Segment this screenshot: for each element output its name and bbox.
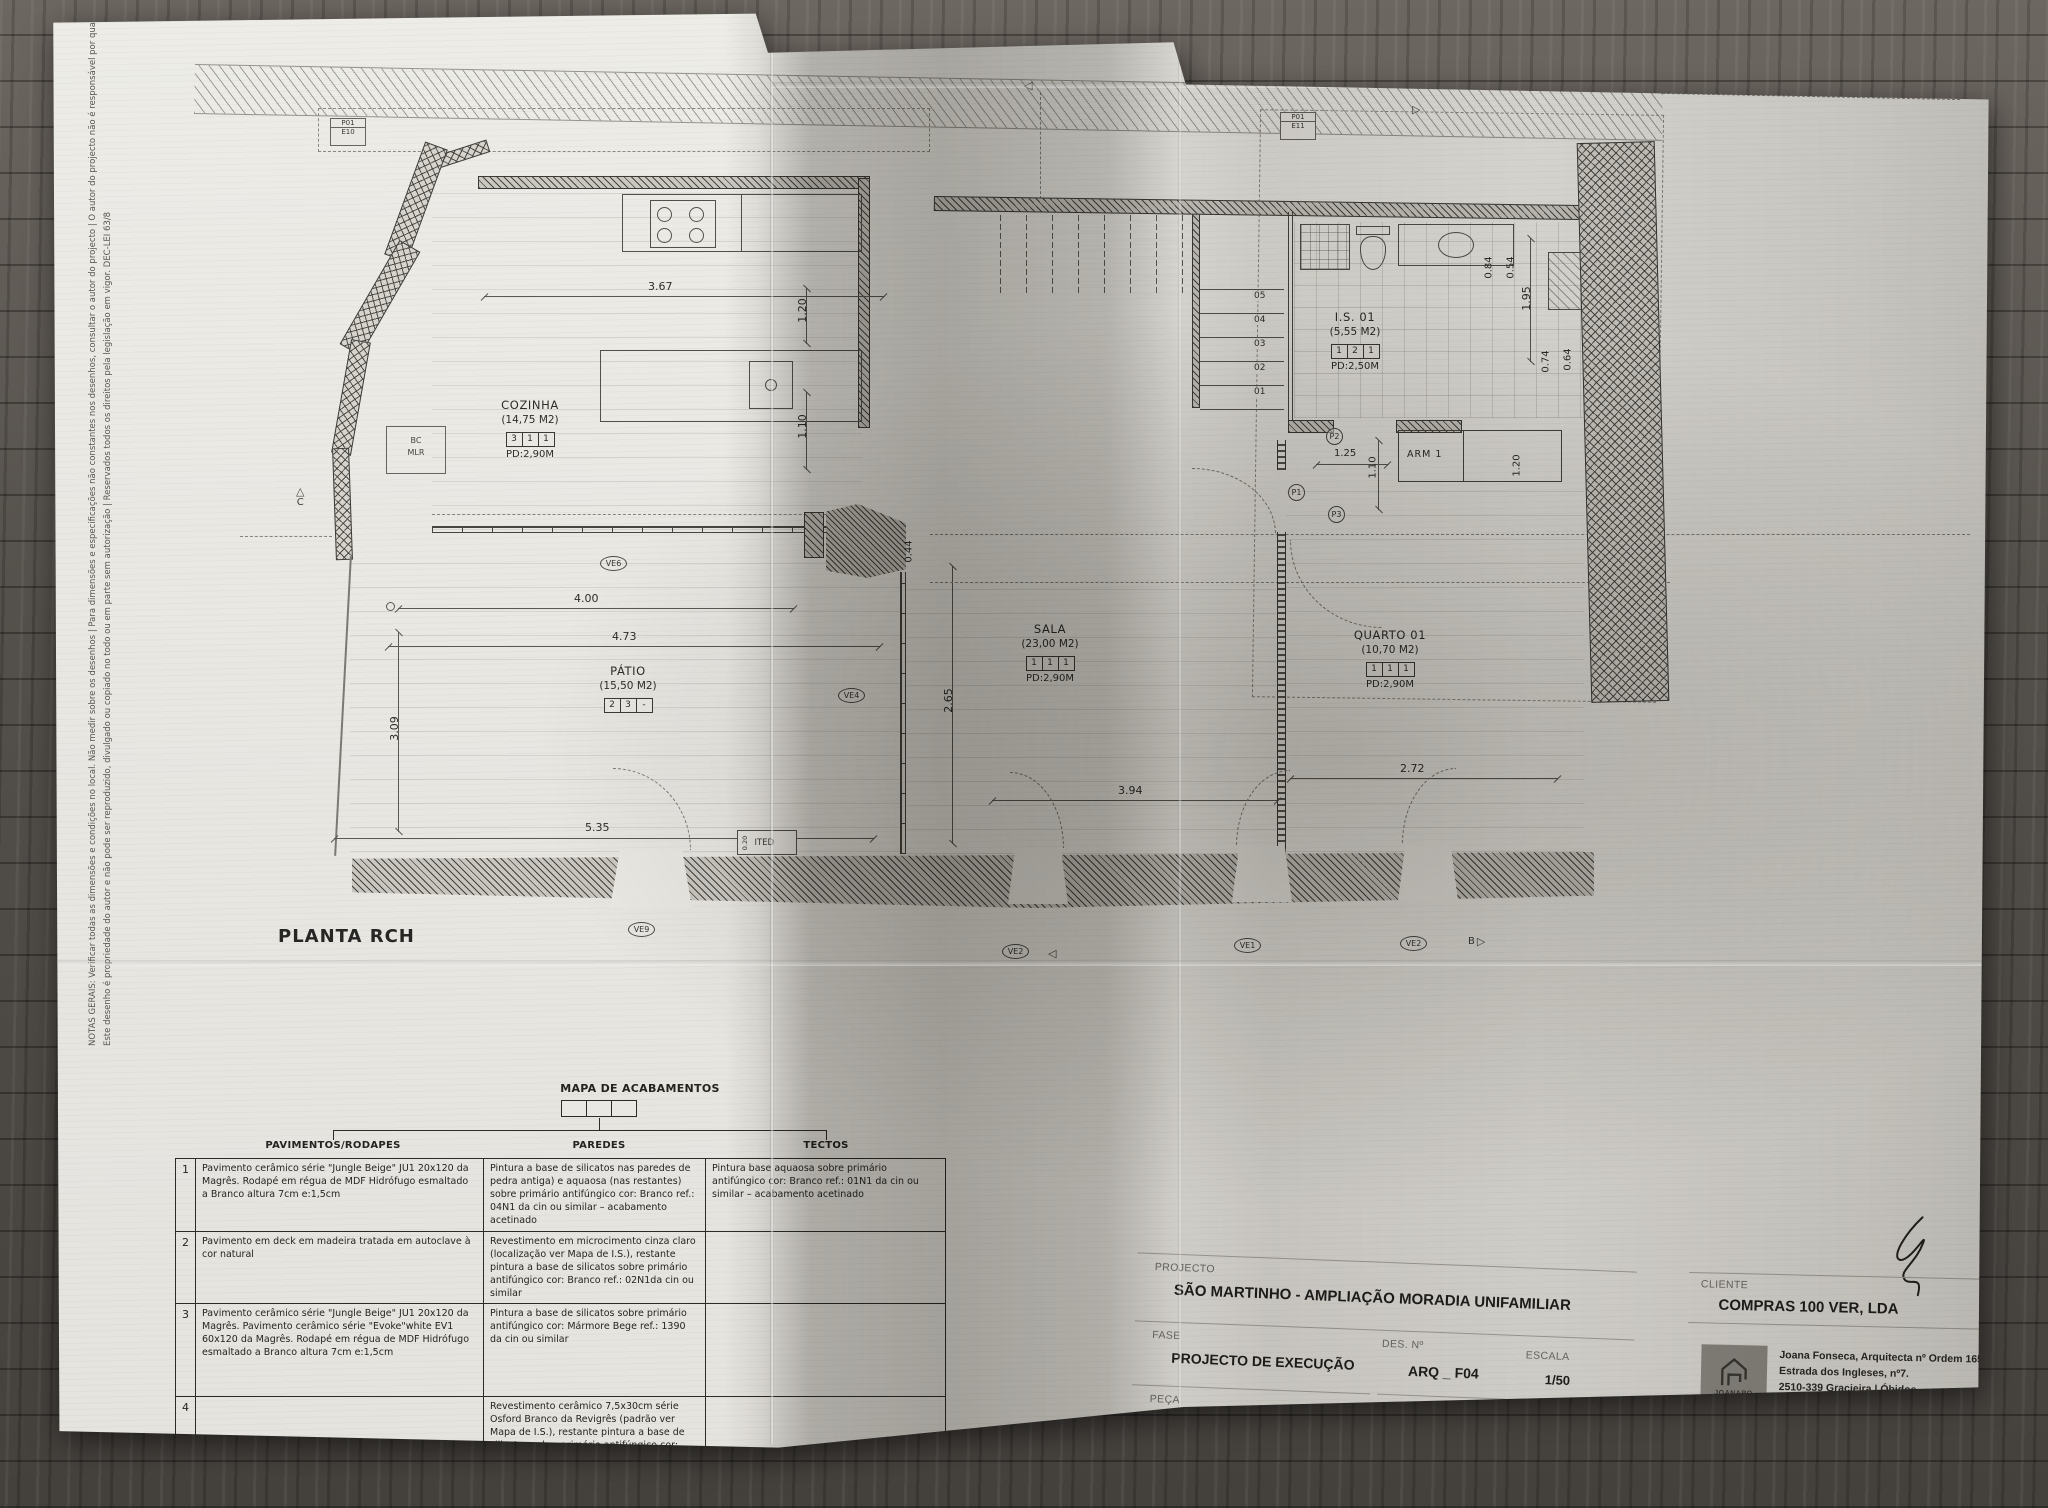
finish-codes: 111 bbox=[1366, 662, 1415, 677]
data-label: DATA bbox=[1379, 1402, 1407, 1415]
dim-label: 4.00 bbox=[574, 592, 599, 605]
code-cell: 1 bbox=[1027, 657, 1043, 670]
finish-map-title: MAPA DE ACABAMENTOS bbox=[520, 1082, 760, 1095]
ref-box-p01-e10: P01 E10 bbox=[330, 118, 366, 146]
cell-tectos: Pintura base aquaosa sobre primário anti… bbox=[706, 1159, 946, 1232]
room-label-sala: SALA (23,00 M2) 111 PD:2,90M bbox=[995, 622, 1105, 684]
dim-label: 1.20 bbox=[1512, 454, 1523, 476]
divider bbox=[1519, 1473, 1611, 1478]
triangle-left-icon: ◁ bbox=[1024, 79, 1032, 92]
escala-value: 1/50 bbox=[1545, 1372, 1571, 1388]
legend-cell bbox=[562, 1101, 587, 1116]
connector-line bbox=[599, 1118, 600, 1130]
boundary-dashed-line bbox=[1662, 93, 1960, 100]
cell-paredes: Pintura a base de silicatos sobre primár… bbox=[484, 1304, 706, 1397]
stair-upper-flight bbox=[1000, 208, 1192, 296]
cliente-block: CLIENTE COMPRAS 100 VER, LDA JOANARQ Joa… bbox=[1685, 1240, 2010, 1477]
escala-label: ESCALA bbox=[1525, 1349, 1569, 1363]
mlr-label: MLR bbox=[387, 447, 445, 459]
room-area: (5,55 M2) bbox=[1300, 326, 1410, 338]
room-area: (14,75 M2) bbox=[470, 414, 590, 426]
architect-line: E-mail: joanaritafonseca@gmail.com bbox=[1778, 1411, 1994, 1432]
dim-line bbox=[388, 646, 880, 647]
door-tag-ve9: VE9 bbox=[628, 922, 655, 937]
code-cell: 1 bbox=[1059, 657, 1074, 670]
cell-pavimentos: Pavimento cerâmico série "Jungle Beige" … bbox=[196, 1304, 484, 1397]
finish-table: 1 Pavimento cerâmico série "Jungle Beige… bbox=[175, 1158, 946, 1478]
room-label-quarto: QUARTO 01 (10,70 M2) 111 PD:2,90M bbox=[1330, 628, 1450, 690]
code-cell: 1 bbox=[1043, 657, 1059, 670]
burner-icon bbox=[689, 207, 704, 222]
general-notes-vertical: NOTAS GERAIS: Verificar todas as dimensõ… bbox=[86, 216, 117, 1046]
dim-label: 1.25 bbox=[1334, 448, 1356, 459]
door-opening bbox=[610, 850, 692, 908]
door-tag-p2: P2 bbox=[1326, 428, 1343, 445]
divider bbox=[1130, 1450, 1368, 1460]
connector-line bbox=[333, 1130, 334, 1140]
cell-pavimentos: Pavimento cerâmico série "Jungle Beige" … bbox=[196, 1159, 484, 1232]
cell-tectos bbox=[706, 1304, 946, 1397]
dim-line bbox=[484, 296, 884, 297]
dim-label: 3.67 bbox=[648, 280, 673, 293]
code-cell: 1 bbox=[1367, 663, 1383, 676]
dim-label: 1.10 bbox=[1368, 456, 1379, 478]
finish-codes: 121 bbox=[1331, 344, 1380, 359]
island-sink bbox=[749, 361, 793, 409]
legend-cell bbox=[587, 1101, 612, 1116]
room-name: SALA bbox=[995, 622, 1105, 636]
title-block: PROJECTO SÃO MARTINHO - AMPLIAÇÃO MORADI… bbox=[1119, 1236, 1648, 1496]
stone-wall-segment bbox=[332, 448, 353, 561]
room-ceiling-height: PD:2,50M bbox=[1300, 361, 1410, 372]
cell-paredes: Pintura a base de silicatos nas paredes … bbox=[484, 1159, 706, 1232]
des-value: ARQ _ F04 bbox=[1408, 1363, 1479, 1382]
stair-step-number: 03 bbox=[1252, 339, 1267, 349]
cliente-value: COMPRAS 100 VER, LDA bbox=[1718, 1297, 1898, 1318]
finish-codes: 111 bbox=[1026, 656, 1075, 671]
row-number: 2 bbox=[176, 1231, 196, 1304]
paper-wrap: P01 E10 P01 E11 ◁ ▷ bbox=[0, 0, 2048, 1508]
connector-line bbox=[826, 1130, 827, 1140]
notes-line1: NOTAS GERAIS: Verificar todas as dimensõ… bbox=[86, 216, 101, 1046]
code-cell: 1 bbox=[1383, 663, 1399, 676]
stove bbox=[650, 200, 716, 248]
table-row: 3 Pavimento cerâmico série "Jungle Beige… bbox=[176, 1304, 946, 1397]
row-number: 1 bbox=[176, 1159, 196, 1232]
kitchen-island bbox=[600, 350, 862, 422]
stone-wall-segment bbox=[331, 339, 371, 456]
ref-box-line2: E10 bbox=[331, 128, 365, 136]
column-header-pavimentos: PAVIMENTOS/RODAPES bbox=[228, 1140, 438, 1151]
bc-label: BC bbox=[387, 435, 445, 447]
level-point-icon bbox=[386, 602, 395, 611]
counter-divider bbox=[741, 195, 742, 251]
dim-label: 3.09 bbox=[388, 716, 401, 741]
code-cell: 1 bbox=[1364, 345, 1379, 358]
fase-value: PROJECTO DE EXECUÇÃO bbox=[1171, 1350, 1355, 1373]
burner-icon bbox=[689, 228, 704, 243]
dim-label: 1.10 bbox=[796, 414, 809, 439]
dim-label: 0.44 bbox=[904, 540, 915, 562]
bc-mlr-box: BC MLR bbox=[386, 426, 446, 474]
room-area: (15,50 M2) bbox=[568, 680, 688, 692]
burner-icon bbox=[657, 228, 672, 243]
closet-divider bbox=[1463, 431, 1464, 481]
ref-box-line1: P01 bbox=[331, 119, 365, 128]
room-label-patio: PÁTIO (15,50 M2) 23- bbox=[568, 664, 688, 713]
dim-label: 0.74 bbox=[1541, 350, 1552, 372]
revisao-label: REVISÃO bbox=[1523, 1415, 1573, 1429]
divider bbox=[1522, 1409, 1614, 1414]
signature bbox=[1881, 1212, 1939, 1297]
peca-value: PROPOSTA - PLANTA RCH bbox=[1169, 1414, 1348, 1437]
dim-line bbox=[1290, 778, 1558, 779]
stair-side-wall bbox=[1192, 208, 1200, 408]
cell-tectos bbox=[706, 1231, 946, 1304]
dim-label: 0.54 bbox=[1506, 256, 1517, 278]
room-label-cozinha: COZINHA (14,75 M2) 311 PD:2,90M bbox=[470, 398, 590, 460]
table-row: 4 Revestimento cerâmico 7,5x30cm série O… bbox=[176, 1397, 946, 1478]
code-cell: 2 bbox=[605, 699, 621, 712]
door-tag-ve2b: VE2 bbox=[1400, 936, 1427, 951]
logo-tagline-bar bbox=[1716, 1397, 1750, 1400]
des-label: DES. Nº bbox=[1382, 1338, 1424, 1352]
section-line-vertical bbox=[1040, 92, 1041, 204]
column-header-tectos: TECTOS bbox=[756, 1140, 896, 1151]
dim-line bbox=[398, 608, 794, 609]
cell-pavimentos: Pavimento em deck em madeira tratada em … bbox=[196, 1231, 484, 1304]
row-number: 3 bbox=[176, 1304, 196, 1397]
ref-box-line1: P01 bbox=[1281, 113, 1315, 122]
glazing-dashed-line bbox=[432, 514, 852, 515]
code-cell: 3 bbox=[507, 433, 523, 446]
section-marker-top-left: ◁ bbox=[1024, 74, 1032, 93]
drawing-sheet: P01 E10 P01 E11 ◁ ▷ bbox=[0, 0, 2048, 1508]
stone-wall-east bbox=[1577, 141, 1670, 703]
is01-west-wall bbox=[1288, 212, 1293, 424]
ref-box-line2: E11 bbox=[1281, 122, 1315, 130]
cozinha-north-wall bbox=[478, 176, 870, 189]
room-name: I.S. 01 bbox=[1300, 310, 1410, 324]
code-cell: 2 bbox=[1348, 345, 1364, 358]
glazed-wall-south bbox=[432, 526, 852, 533]
code-cell: 1 bbox=[523, 433, 539, 446]
architect-info: Joana Fonseca, Arquitecta nº Ordem 16595… bbox=[1778, 1348, 1995, 1432]
wall-pier-small bbox=[804, 512, 824, 558]
room-label-is01: I.S. 01 (5,55 M2) 121 PD:2,50M bbox=[1300, 310, 1410, 372]
door-tag-ve1: VE1 bbox=[1234, 938, 1261, 953]
architect-logo: JOANARQ bbox=[1700, 1344, 1767, 1409]
ited-label: ITED bbox=[754, 838, 774, 848]
door-tag-ve2: VE2 bbox=[1002, 944, 1029, 959]
code-cell: 3 bbox=[621, 699, 637, 712]
projecto-value: SÃO MARTINHO - AMPLIAÇÃO MORADIA UNIFAMI… bbox=[1174, 1282, 1572, 1314]
dim-label: 5.35 bbox=[585, 821, 610, 834]
divider bbox=[1374, 1466, 1502, 1472]
stair-lower-flight bbox=[1200, 288, 1284, 410]
plan-caption: PLANTA RCH bbox=[278, 926, 415, 947]
room-ceiling-height: PD:2,90M bbox=[995, 673, 1105, 684]
section-marker-c-left: △ C bbox=[296, 486, 304, 508]
shower-tray bbox=[1300, 224, 1350, 270]
wall-pier bbox=[826, 504, 906, 578]
sink-drain-icon bbox=[765, 379, 777, 391]
code-cell: 1 bbox=[1399, 663, 1414, 676]
triangle-icon: △ bbox=[296, 486, 304, 497]
triangle-left-icon: ◁ bbox=[1048, 947, 1056, 960]
arm1-closet: ARM 1 bbox=[1398, 430, 1562, 482]
dim-label: 2.72 bbox=[1400, 762, 1425, 775]
closet-label: ARM 1 bbox=[1407, 449, 1442, 460]
glazed-wall-patio-sala bbox=[900, 572, 906, 854]
architect-line: Tel: 91 082 80 98 bbox=[1778, 1395, 1994, 1416]
door-opening bbox=[1008, 848, 1068, 904]
door-opening bbox=[1398, 845, 1458, 901]
dim-label: 4.73 bbox=[612, 630, 637, 643]
section-marker-top-right: ▷ bbox=[1412, 98, 1420, 117]
washbasin bbox=[1438, 232, 1474, 258]
finish-map-legend-boxes bbox=[561, 1100, 637, 1117]
section-letter: C bbox=[296, 497, 304, 508]
toilet-tank bbox=[1356, 226, 1390, 235]
dim-label: 1.95 bbox=[1520, 286, 1533, 311]
section-marker-b: B ▷ bbox=[1468, 936, 1485, 947]
house-logo-icon bbox=[1716, 1354, 1753, 1389]
cell-tectos bbox=[706, 1397, 946, 1478]
cell-paredes: Revestimento em microcimento cinza claro… bbox=[484, 1231, 706, 1304]
ited-box: 0.20 ITED bbox=[737, 830, 797, 855]
room-name: QUARTO 01 bbox=[1330, 628, 1450, 642]
door-opening bbox=[1232, 846, 1292, 902]
table-row: 2 Pavimento em deck em madeira tratada e… bbox=[176, 1231, 946, 1304]
cell-paredes: Revestimento cerâmico 7,5x30cm série Osf… bbox=[484, 1397, 706, 1478]
room-ceiling-height: PD:2,90M bbox=[470, 449, 590, 460]
stair-step-number: 02 bbox=[1252, 363, 1267, 373]
notes-line2: Este desenho é propriedade do autor e nã… bbox=[101, 216, 116, 1046]
room-area: (10,70 M2) bbox=[1330, 644, 1450, 656]
section-marker-bottom-left: ◁ bbox=[1048, 942, 1056, 961]
dim-label: 3.94 bbox=[1118, 784, 1143, 797]
dim-label: 1.20 bbox=[796, 298, 809, 323]
ref-box-p01-e11: P01 E11 bbox=[1280, 112, 1316, 140]
divider bbox=[1377, 1394, 1505, 1400]
column-header-paredes: PAREDES bbox=[529, 1140, 669, 1151]
dim-label: 0.84 bbox=[1484, 256, 1495, 278]
stair-step-number: 01 bbox=[1252, 387, 1267, 397]
row-number: 4 bbox=[176, 1397, 196, 1478]
finish-codes: 23- bbox=[604, 698, 653, 713]
code-cell: 1 bbox=[539, 433, 554, 446]
logo-text: JOANARQ bbox=[1714, 1389, 1753, 1397]
data-value: FEVEREIRO 2024 bbox=[1388, 1430, 1504, 1450]
finish-map: MAPA DE ACABAMENTOS PAVIMENTOS/RODAPES P… bbox=[165, 1078, 965, 1458]
cliente-label: CLIENTE bbox=[1701, 1278, 1748, 1291]
projecto-label: PROJECTO bbox=[1155, 1261, 1216, 1275]
revisao-value: --- bbox=[1544, 1440, 1564, 1456]
finish-codes: 311 bbox=[506, 432, 555, 447]
dim-label: 0.64 bbox=[1563, 348, 1574, 370]
legend-cell bbox=[612, 1101, 636, 1116]
window-tag-ve4: VE4 bbox=[838, 688, 865, 703]
room-ceiling-height: PD:2,90M bbox=[1330, 679, 1450, 690]
section-letter: B bbox=[1468, 936, 1475, 947]
code-cell: - bbox=[637, 699, 652, 712]
room-name: PÁTIO bbox=[568, 664, 688, 678]
ited-dim: 0.20 bbox=[741, 835, 749, 849]
room-area: (23,00 M2) bbox=[995, 638, 1105, 650]
stair-step-number: 05 bbox=[1252, 291, 1267, 301]
photo-of-drawing-on-wood-desk: P01 E10 P01 E11 ◁ ▷ bbox=[0, 0, 2048, 1508]
code-cell: 1 bbox=[1332, 345, 1348, 358]
peca-label: PEÇA bbox=[1150, 1393, 1181, 1406]
divider bbox=[1688, 1322, 1988, 1330]
table-row: 1 Pavimento cerâmico série "Jungle Beige… bbox=[176, 1159, 946, 1232]
sala-floor bbox=[906, 572, 1276, 854]
setback-dashed-rect-left bbox=[318, 108, 930, 152]
triangle-right-icon: ▷ bbox=[1412, 103, 1420, 116]
room-name: COZINHA bbox=[470, 398, 590, 412]
connector-line bbox=[333, 1130, 827, 1131]
cell-pavimentos bbox=[196, 1397, 484, 1478]
stair-step-number: 04 bbox=[1252, 315, 1267, 325]
section-dash-line bbox=[240, 536, 332, 537]
burner-icon bbox=[657, 207, 672, 222]
triangle-right-icon: ▷ bbox=[1477, 936, 1485, 947]
fase-label: FASE bbox=[1152, 1329, 1181, 1342]
